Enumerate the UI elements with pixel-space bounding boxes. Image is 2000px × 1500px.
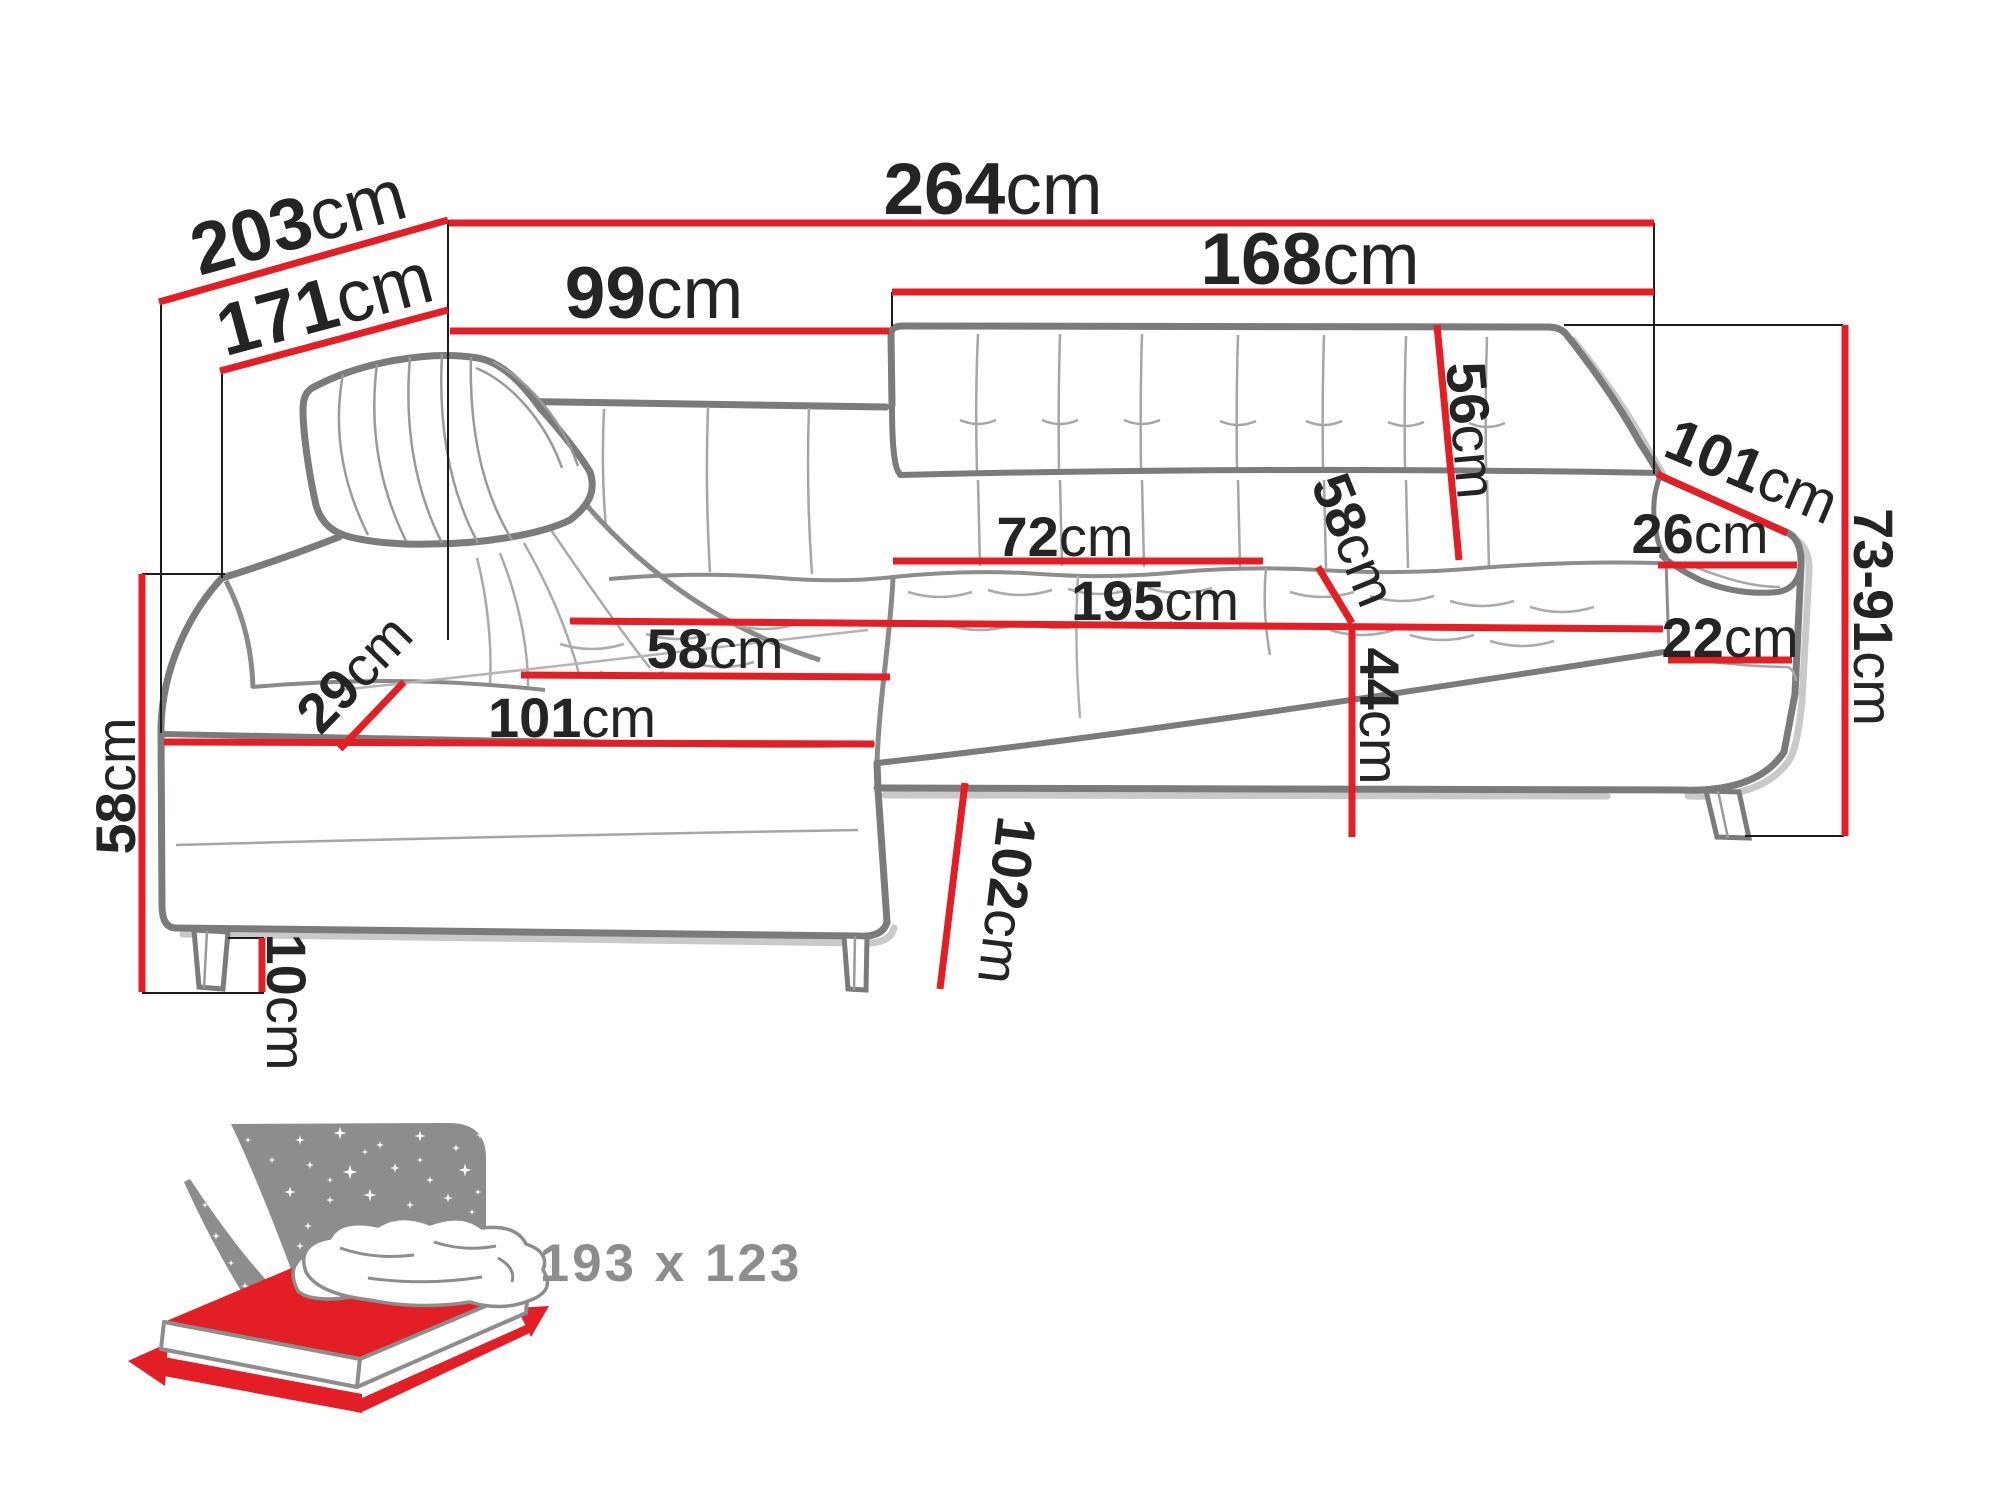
svg-text:195cm: 195cm — [1071, 569, 1239, 632]
svg-text:101cm: 101cm — [488, 686, 656, 749]
svg-text:22cm: 22cm — [1662, 606, 1799, 669]
svg-text:10cm: 10cm — [255, 934, 318, 1071]
svg-text:26cm: 26cm — [1632, 502, 1769, 565]
svg-text:58cm: 58cm — [84, 718, 147, 855]
svg-text:168cm: 168cm — [1200, 219, 1419, 300]
svg-text:56cm: 56cm — [1434, 359, 1509, 501]
svg-text:72cm: 72cm — [997, 505, 1134, 568]
svg-text:264cm: 264cm — [883, 149, 1102, 230]
svg-text:99cm: 99cm — [565, 253, 744, 334]
svg-text:102cm: 102cm — [966, 813, 1049, 988]
svg-text:73-91cm: 73-91cm — [1842, 508, 1905, 726]
svg-text:193 x 123: 193 x 123 — [540, 1234, 803, 1293]
svg-text:58cm: 58cm — [647, 617, 784, 680]
svg-text:44cm: 44cm — [1348, 648, 1411, 785]
